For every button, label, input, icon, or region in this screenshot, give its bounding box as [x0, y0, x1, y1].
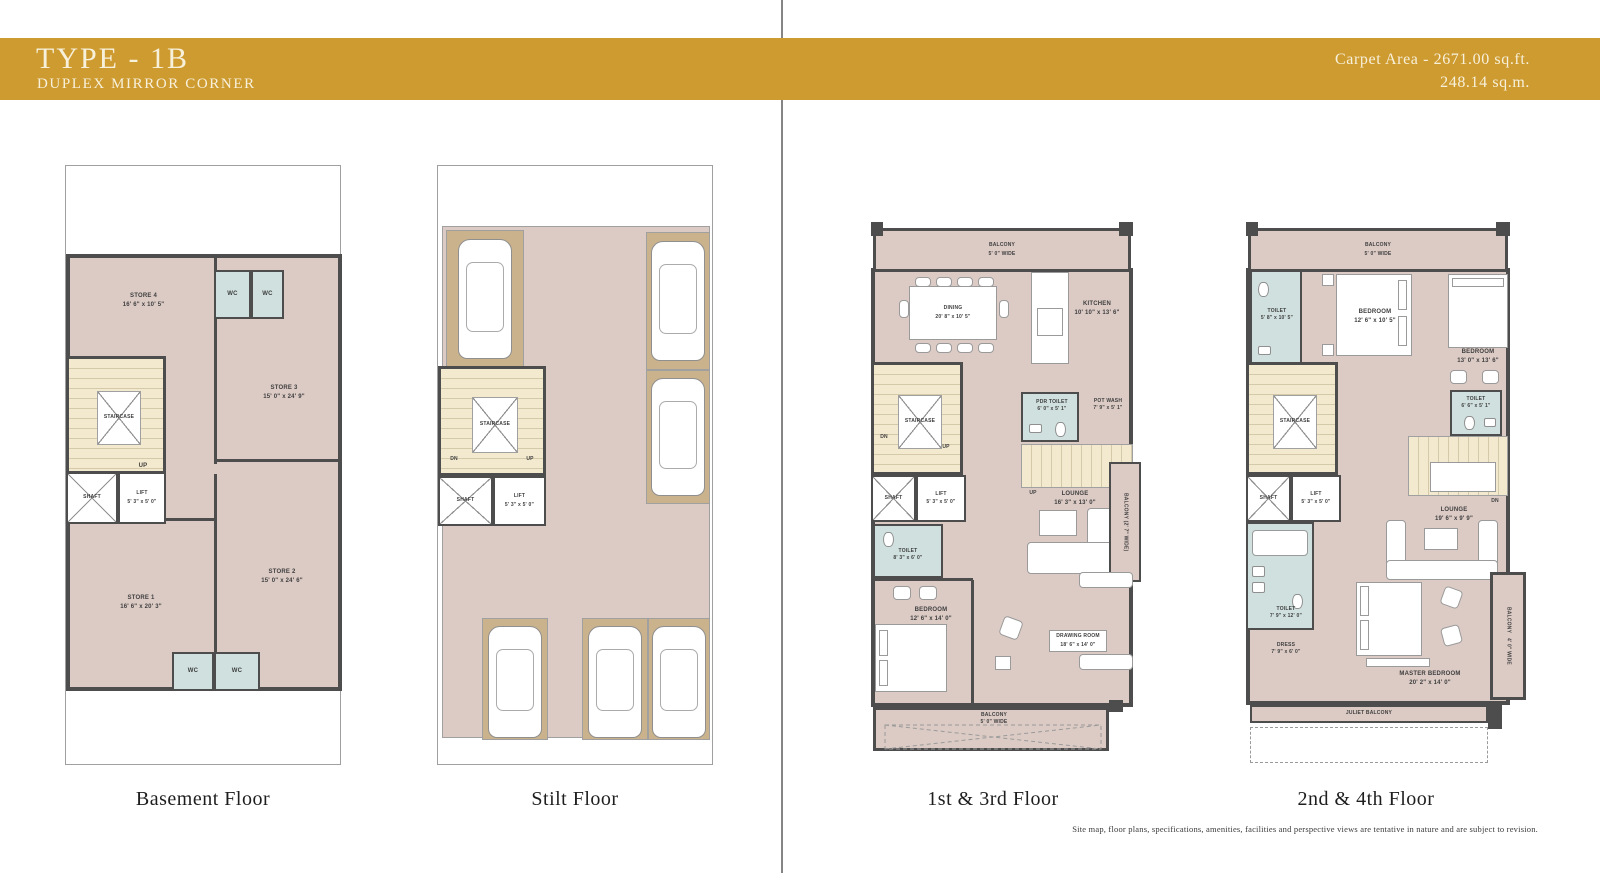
page-title: TYPE - 1B [36, 42, 189, 76]
room-wc: WC [214, 652, 260, 691]
side-table [995, 656, 1011, 670]
wall [971, 580, 974, 707]
room-name: MASTER BEDROOM [1380, 670, 1480, 679]
lounge-label: LOUNGE 16' 3" x 13' 0" [1039, 490, 1111, 507]
staircase-core: STAIRCASE [1273, 395, 1317, 449]
sink-icon [1029, 424, 1042, 433]
shaft: SHAFT [66, 472, 118, 524]
wc-label: WC [188, 667, 198, 676]
room-name: BEDROOM [891, 606, 971, 615]
juliet-balcony: JULIET BALCONY [1250, 705, 1488, 723]
pier [1246, 222, 1258, 236]
pier [1119, 222, 1133, 236]
caption-second-fourth: 2nd & 4th Floor [1228, 788, 1504, 811]
sofa-icon [1079, 654, 1133, 670]
lift: LIFT 5' 3" x 5' 0" [1291, 475, 1341, 522]
room-dim: 20' 2" x 14' 0" [1380, 679, 1480, 688]
car-icon [651, 241, 705, 361]
chair-icon [936, 277, 952, 287]
room-name: STORE 1 [81, 594, 201, 603]
dining-label: DINING [944, 305, 963, 312]
pot-wash-label: POT WASH 7' 9" x 5' 1" [1083, 398, 1133, 413]
shaft-label: SHAFT [457, 497, 475, 504]
toilet-icon [1258, 282, 1269, 297]
room-name: LOUNGE [1416, 506, 1492, 515]
dining-table: DINING 20' 8" x 10' 5" [909, 286, 997, 340]
stair-landing [1430, 462, 1496, 492]
lift-dim: 5' 3" x 5' 0" [1301, 499, 1330, 506]
shaft: SHAFT [1246, 475, 1291, 522]
master-bedroom-label: MASTER BEDROOM 20' 2" x 14' 0" [1380, 670, 1480, 687]
console-table [1366, 658, 1430, 667]
staircase: STAIRCASE [66, 356, 166, 474]
wc-label: WC [232, 667, 242, 676]
pillow [879, 630, 888, 656]
coffee-table [1424, 528, 1458, 550]
staircase-label: STAIRCASE [1280, 418, 1310, 425]
wall [214, 459, 342, 462]
pillow [1360, 620, 1369, 650]
room-wc: WC [172, 652, 214, 691]
chair-icon [957, 343, 973, 353]
balcony-name: BALCONY [1506, 607, 1512, 633]
room-wc: WC [251, 270, 284, 319]
room-dim: 8' 3" x 6' 0" [875, 555, 941, 562]
chair-icon [899, 300, 909, 318]
room-dim: 7' 9" x 12' 0" [1260, 613, 1312, 620]
sofa-icon [1027, 542, 1117, 574]
pillow [1360, 586, 1369, 616]
bedroom-label: BEDROOM 12' 6" x 14' 0" [891, 606, 971, 623]
room-dim: 5' 8" x 10' 5" [1252, 315, 1302, 322]
wc-label: WC [227, 290, 237, 299]
lift-label: LIFT [1310, 491, 1321, 498]
sofa-icon [1386, 560, 1498, 580]
store1-label: STORE 1 16' 6" x 20' 3" [81, 594, 201, 611]
staircase-core: STAIRCASE [898, 395, 942, 449]
room-dim: 13' 0" x 13' 6" [1446, 357, 1510, 366]
page-subtitle: DUPLEX MIRROR CORNER [37, 76, 256, 93]
balcony-label: BALCONY [1365, 242, 1391, 249]
plan-second-fourth: BALCONY 5' 0" WIDE TOILET 5' 8" x 10' 5"… [1246, 222, 1528, 767]
room-wc: WC [214, 270, 251, 319]
room-toilet: TOILET 7' 9" x 12' 0" [1246, 522, 1314, 630]
room-dim: 10' 10" x 13' 6" [1063, 309, 1131, 318]
staircase-label: STAIRCASE [480, 421, 510, 428]
disclaimer-text: Site map, floor plans, specifications, a… [1072, 824, 1538, 834]
store2-label: STORE 2 15' 0" x 24' 6" [226, 568, 338, 585]
room-name: TOILET [1252, 308, 1302, 315]
juliet-balcony-label: JULIET BALCONY [1346, 710, 1392, 717]
chair-icon [919, 586, 937, 600]
nightstand [1322, 344, 1334, 356]
carpet-area-sqft: Carpet Area - 2671.00 sq.ft. [1335, 48, 1530, 71]
chair-icon [936, 343, 952, 353]
room-name: KITCHEN [1063, 300, 1131, 309]
car-icon [588, 626, 642, 738]
balcony-dim: 4' 0" WIDE [1506, 638, 1512, 665]
room-dim: 18' 6" x 14' 0" [1060, 642, 1095, 649]
kitchen-label: KITCHEN 10' 10" x 13' 6" [1063, 300, 1131, 317]
terrace-outline [1250, 727, 1488, 763]
room-dim: 6' 0" x 5' 1" [1023, 406, 1081, 413]
bedroom2-label: BEDROOM 13' 0" x 13' 6" [1446, 348, 1510, 365]
caption-stilt: Stilt Floor [437, 788, 713, 811]
wall [871, 578, 973, 581]
pier [1496, 222, 1510, 236]
balcony-right: BALCONY (2' 7" WIDE) [1109, 462, 1141, 582]
room-dim: 7' 9" x 6' 0" [1258, 649, 1314, 656]
room-name: STORE 3 [238, 384, 330, 393]
room-dim: 6' 6" x 5' 1" [1452, 403, 1500, 410]
shaft-label: SHAFT [885, 495, 903, 502]
room-dim: 12' 6" x 14' 0" [891, 615, 971, 624]
shaft: SHAFT [438, 476, 493, 526]
sink-icon [1252, 566, 1265, 577]
dn-label: DN [873, 434, 895, 441]
nightstand [1322, 274, 1334, 286]
balcony-top: BALCONY 5' 0" WIDE [873, 228, 1131, 272]
pier [1488, 705, 1502, 729]
room-name: STORE 2 [226, 568, 338, 577]
lift-label: LIFT [514, 493, 525, 500]
room-name: TOILET [875, 548, 941, 555]
room-name: TOILET [1452, 396, 1500, 403]
plan-first-third: BALCONY 5' 0" WIDE DINING 20' 8" x 10' 5… [871, 222, 1143, 753]
lift-dim: 5' 3" x 5' 0" [505, 502, 534, 509]
car-icon [458, 239, 512, 359]
coffee-table [1039, 510, 1077, 536]
room-dim: 15' 0" x 24' 9" [238, 393, 330, 402]
toilet-icon [883, 532, 894, 547]
lift-dim: 5' 3" x 5' 0" [127, 499, 156, 506]
staircase-label: STAIRCASE [905, 418, 935, 425]
balcony-right: BALCONY 4' 0" WIDE [1490, 572, 1526, 700]
room-name: BEDROOM [1446, 348, 1510, 357]
sofa-icon [1079, 572, 1133, 588]
caption-first-third: 1st & 3rd Floor [858, 788, 1128, 811]
room-dim: 15' 0" x 24' 6" [226, 577, 338, 586]
chair-icon [1450, 370, 1467, 384]
page-divider [781, 0, 783, 873]
lift: LIFT 5' 3" x 5' 0" [916, 475, 966, 522]
dn-label: DN [442, 456, 466, 463]
balcony-dim: 5' 0" WIDE [989, 251, 1016, 258]
car-icon [652, 626, 706, 738]
dress-label: DRESS 7' 9" x 6' 0" [1258, 642, 1314, 657]
staircase-core: STAIRCASE [97, 391, 141, 445]
carpet-area: Carpet Area - 2671.00 sq.ft. 248.14 sq.m… [1335, 48, 1530, 94]
balcony-label: BALCONY (2' 7" WIDE) [1121, 493, 1128, 551]
store3-label: STORE 3 15' 0" x 24' 9" [238, 384, 330, 401]
room-dim: 16' 3" x 13' 0" [1039, 499, 1111, 508]
room-dim: 16' 6" x 10' 5" [76, 301, 211, 310]
chair-icon [1482, 370, 1499, 384]
room-name: STORE 4 [76, 292, 211, 301]
shaft-label: SHAFT [83, 494, 101, 501]
balcony-dim: 5' 0" WIDE [1365, 251, 1392, 258]
dining-dim: 20' 8" x 10' 5" [935, 314, 970, 321]
room-dim: 16' 6" x 20' 3" [81, 603, 201, 612]
balcony-top: BALCONY 5' 0" WIDE [1248, 228, 1508, 272]
store4-label: STORE 4 16' 6" x 10' 5" [76, 292, 211, 309]
room-name: POT WASH [1083, 398, 1133, 405]
room-name: TOILET [1260, 606, 1312, 613]
balcony-label: BALCONY [934, 712, 1054, 719]
room-dim: 7' 9" x 5' 1" [1083, 405, 1133, 412]
staircase: STAIRCASE [1246, 362, 1338, 475]
bathtub-icon [1252, 530, 1308, 556]
sink-icon [1258, 346, 1271, 355]
up-label: UP [518, 456, 542, 463]
chair-icon [957, 277, 973, 287]
room-name: LOUNGE [1039, 490, 1111, 499]
staircase-label: STAIRCASE [104, 414, 134, 421]
toilet-icon [1464, 416, 1475, 430]
chair-icon [978, 343, 994, 353]
shaft-label: SHAFT [1260, 495, 1278, 502]
lift: LIFT 5' 3" x 5' 0" [118, 472, 166, 524]
lift-label: LIFT [935, 491, 946, 498]
balcony-label: BALCONY [989, 242, 1015, 249]
drawing-room-label-box: DRAWING ROOM 18' 6" x 14' 0" [1049, 630, 1107, 652]
staircase-core: STAIRCASE [472, 397, 518, 453]
chair-icon [978, 277, 994, 287]
up-label: UP [935, 444, 957, 451]
room-dim: 12' 6" x 10' 5" [1342, 317, 1408, 326]
lift-label: LIFT [136, 490, 147, 497]
carpet-area-sqm: 248.14 sq.m. [1335, 71, 1530, 94]
room-name: BEDROOM [1342, 308, 1408, 317]
room-name: PDR TOILET [1023, 399, 1081, 406]
bedroom1-label: BEDROOM 12' 6" x 10' 5" [1342, 308, 1408, 325]
stove-icon [1037, 308, 1063, 336]
wc-label: WC [262, 290, 272, 299]
room-name: DRAWING ROOM [1056, 633, 1100, 640]
car-icon [488, 626, 542, 738]
sink-icon [1252, 582, 1265, 593]
pier [1109, 700, 1123, 712]
car-icon [651, 378, 705, 496]
room-toilet: TOILET 8' 3" x 6' 0" [873, 524, 943, 578]
pier [871, 222, 883, 236]
room-toilet: TOILET 5' 8" x 10' 5" [1250, 270, 1302, 366]
chair-icon [915, 277, 931, 287]
lift-dim: 5' 3" x 5' 0" [926, 499, 955, 506]
chair-icon [999, 300, 1009, 318]
up-label: UP [128, 462, 158, 471]
chair-icon [915, 343, 931, 353]
brochure-page: TYPE - 1B DUPLEX MIRROR CORNER Carpet Ar… [0, 0, 1600, 873]
staircase: STAIRCASE [871, 362, 963, 475]
balcony-hatch [884, 724, 1102, 750]
toilet-icon [1055, 422, 1066, 437]
room-pdr-toilet: PDR TOILET 6' 0" x 5' 1" [1021, 392, 1079, 442]
sink-icon [1484, 418, 1496, 427]
caption-basement: Basement Floor [65, 788, 341, 811]
pillow [879, 660, 888, 686]
shaft: SHAFT [871, 475, 916, 522]
pillow [1452, 278, 1504, 287]
dn-label: DN [1484, 498, 1506, 505]
chair-icon [893, 586, 911, 600]
balcony-label: BALCONY 4' 0" WIDE [1504, 607, 1511, 665]
lift: LIFT 5' 3" x 5' 0" [493, 476, 546, 526]
room-name: DRESS [1258, 642, 1314, 649]
pillow [1398, 280, 1407, 310]
balcony-bottom: BALCONY 5' 0" WIDE [873, 707, 1109, 751]
room-toilet: TOILET 6' 6" x 5' 1" [1450, 390, 1502, 436]
plan-basement: WC WC STAIRCASE UP SHAFT LIFT 5' 3" x 5'… [65, 165, 341, 765]
plan-stilt: STAIRCASE DN UP SHAFT LIFT 5' 3" x 5' 0" [437, 165, 713, 765]
